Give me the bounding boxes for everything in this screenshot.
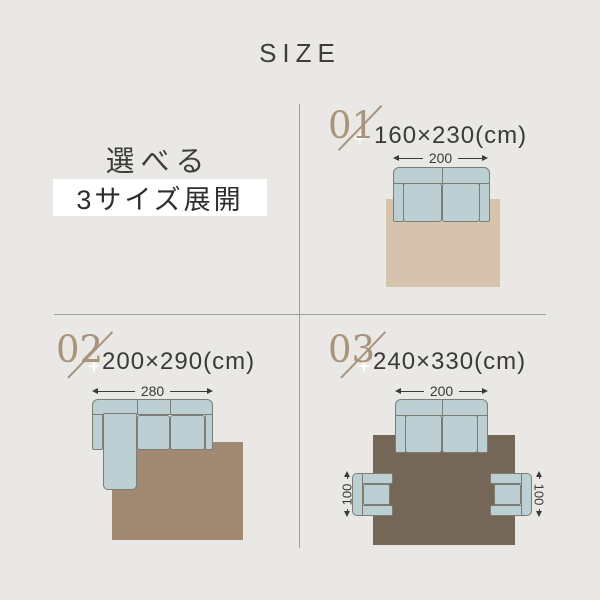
sofa-chaise-lounge: [103, 413, 137, 490]
armchair-armrest: [360, 505, 393, 516]
sofa-backrest-divider: [170, 400, 171, 414]
sofa-seat-cushion: [442, 415, 479, 453]
intro-highlight-text: 3サイズ展開: [76, 178, 243, 217]
sofa-top-view: [393, 167, 490, 222]
sofa-seat-cushion: [442, 183, 481, 222]
page-title: SIZE: [0, 38, 600, 69]
sofa-armrest-right: [477, 412, 488, 453]
dimension-line: [170, 391, 207, 392]
sofa-seat-cushion: [170, 415, 205, 450]
size-dimensions-label: 200×290(cm): [102, 348, 255, 376]
armchair-top-view: [352, 473, 393, 516]
size-dimensions-label: 160×230(cm): [374, 122, 527, 150]
sofa-seat-cushion: [403, 183, 442, 222]
dimension-arrow-right-icon: [482, 155, 488, 161]
armchair-armrest: [490, 505, 524, 516]
sofa-armrest-left: [92, 412, 103, 450]
size-section-03: 03 240×330(cm) 200 100: [300, 314, 600, 548]
dimension-arrow-right-icon: [207, 388, 213, 394]
sofa-top-view: [395, 399, 488, 453]
dimension-arrow-right-icon: [482, 388, 488, 394]
sofa-backrest-divider: [442, 400, 443, 415]
sofa-width-dimension: 200: [393, 150, 488, 166]
size-section-01: 01 160×230(cm) 200: [300, 104, 600, 314]
intro-highlight-box: 3サイズ展開: [53, 179, 267, 216]
armchair-armrest: [490, 473, 524, 484]
dimension-line: [459, 391, 482, 392]
dimension-value: 280: [135, 384, 170, 398]
sectional-sofa-top-view: [92, 399, 213, 490]
sofa-seat-cushion: [405, 415, 442, 453]
sofa-backrest-divider: [137, 400, 138, 414]
intro-catchphrase: 選べる: [38, 138, 278, 180]
armchair-seat: [363, 484, 390, 505]
dimension-line: [98, 391, 135, 392]
sofa-armrest-right: [479, 180, 490, 222]
size-infographic: SIZE 選べる 3サイズ展開 01 160×230(cm) 200: [0, 0, 600, 600]
sofa-backrest-divider: [442, 168, 443, 183]
size-number: 01: [328, 107, 375, 144]
dimension-line: [458, 158, 482, 159]
size-section-02: 02 200×290(cm) 280: [0, 314, 300, 548]
sofa-seat-cushion: [137, 415, 170, 450]
dimension-value: 200: [423, 151, 458, 165]
dimension-value: 100: [533, 483, 546, 505]
dimension-line: [399, 158, 423, 159]
dimension-value: 200: [424, 384, 459, 398]
size-number: 03: [328, 331, 375, 368]
dimension-line: [401, 391, 424, 392]
armchair-top-view: [490, 473, 532, 516]
dimension-arrow-down-icon: [344, 511, 350, 517]
sofa-width-dimension: 200: [395, 383, 488, 399]
size-number: 02: [56, 331, 103, 368]
size-dimensions-label: 240×330(cm): [373, 348, 526, 376]
armchair-backrest: [352, 473, 363, 516]
sofa-width-dimension: 280: [92, 383, 213, 399]
chair-depth-dimension-right: 100: [533, 471, 545, 517]
armchair-seat: [494, 484, 521, 505]
dimension-arrow-down-icon: [536, 511, 542, 517]
armchair-armrest: [360, 473, 393, 484]
sofa-armrest-right: [205, 412, 213, 450]
